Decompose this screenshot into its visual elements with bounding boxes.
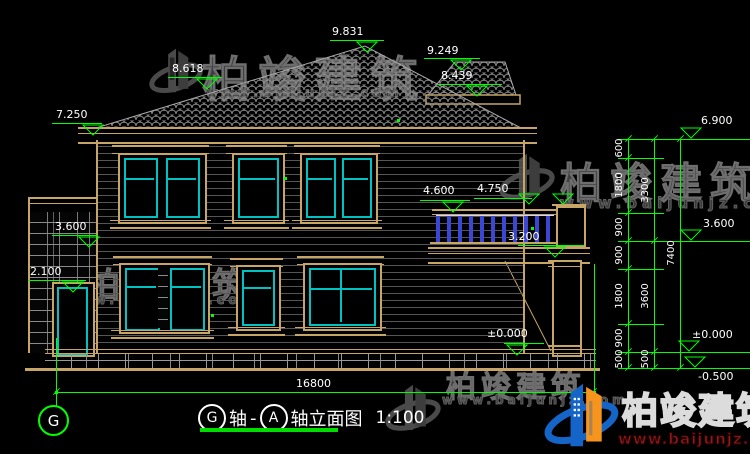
dim-label: 3300 <box>640 170 652 210</box>
ground-line <box>25 368 600 371</box>
title-scale: 1:100 <box>376 408 425 428</box>
grip-dot <box>55 391 58 394</box>
dim-label: 1800 <box>614 276 626 316</box>
elevation-marker-icon <box>196 78 218 90</box>
axis-line-g <box>56 338 57 406</box>
grip-dot <box>531 227 534 230</box>
dim-line-16800 <box>56 392 594 393</box>
elevation-marker-icon <box>356 41 378 53</box>
elevation-marker-icon <box>466 85 488 97</box>
dim-label: 600 <box>614 128 626 168</box>
grip-dot <box>211 314 214 317</box>
elevation-marker-icon <box>442 201 464 213</box>
elevation-marker-icon <box>680 229 702 241</box>
dim-label: 500 <box>640 339 652 379</box>
elevation-marker-icon <box>78 236 100 248</box>
cad-elevation-canvas: 柏竣建筑 www.baijunjz.com 柏竣建筑 www.baijunjz.… <box>0 0 750 454</box>
elevation-marker-icon <box>678 340 700 352</box>
title-underline <box>200 428 338 432</box>
elevation-marker-icon <box>552 193 574 205</box>
dim-label: 1800 <box>614 165 626 205</box>
dim-label: 500 <box>614 339 626 379</box>
elevation-marker-icon <box>506 344 528 356</box>
level-label: 9.249 <box>427 45 459 57</box>
level-label: 3.600 <box>55 221 87 233</box>
level-label: 2.100 <box>30 266 62 278</box>
elevation-marker-icon <box>684 356 706 368</box>
level-label: 3.600 <box>703 218 735 230</box>
axis-bubble-g: G <box>38 405 69 436</box>
level-label: 4.750 <box>477 183 509 195</box>
level-label: 3.200 <box>508 231 540 243</box>
brand-logo-icon <box>543 376 623 454</box>
elevation-marker-icon <box>82 124 104 136</box>
level-label: 7.250 <box>56 109 88 121</box>
brand-name: 柏竣建筑 <box>622 382 750 434</box>
level-label: 9.831 <box>332 26 364 38</box>
elevation-marker-icon <box>518 193 540 205</box>
level-label: 4.600 <box>423 185 455 197</box>
level-label: ±0.000 <box>487 328 528 340</box>
balcony-column <box>552 260 582 357</box>
dim-label: 3600 <box>640 276 652 316</box>
brand-site: www.baijunjz.com <box>618 430 750 448</box>
grip-dot <box>284 177 287 180</box>
elevation-marker-icon <box>544 246 566 258</box>
balcony-pillar <box>556 206 586 248</box>
elevation-marker-icon <box>680 127 702 139</box>
level-label: 8.618 <box>172 63 204 75</box>
overall-width-dim: 16800 <box>296 378 331 390</box>
dim-label: 900 <box>614 235 626 275</box>
level-label: 6.900 <box>701 115 733 127</box>
elevation-marker-icon <box>62 281 84 293</box>
grip-dot <box>397 119 400 122</box>
dim-label: 7400 <box>666 233 678 273</box>
level-label: 8.439 <box>441 70 473 82</box>
